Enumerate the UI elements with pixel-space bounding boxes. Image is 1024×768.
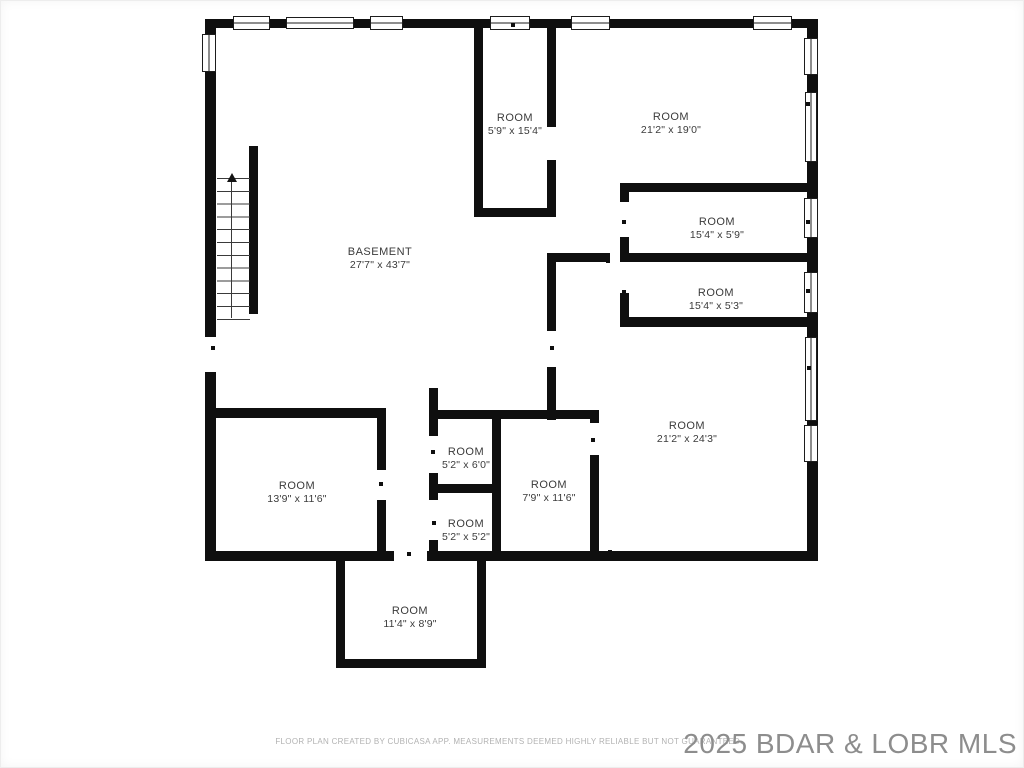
- wall-marker: [622, 290, 626, 294]
- window: [202, 34, 216, 72]
- wall-marker: [806, 289, 810, 293]
- window: [233, 16, 270, 30]
- wall-marker: [622, 185, 626, 189]
- wall-marker: [591, 438, 595, 442]
- wall-marker: [379, 482, 383, 486]
- door-opening: [546, 127, 557, 160]
- wall-marker: [550, 346, 554, 350]
- room-name: ROOM: [442, 446, 490, 459]
- room-label-center-small-lower: ROOM 5'2" x 5'2": [442, 518, 490, 544]
- room-label-bottom-right: ROOM 21'2" x 24'3": [657, 420, 717, 446]
- room-name: ROOM: [522, 479, 575, 492]
- room-label-basement: BASEMENT 27'7" x 43'7": [348, 246, 413, 272]
- room-label-bottom: ROOM 11'4" x 8'9": [383, 605, 436, 631]
- wall-marker: [715, 319, 719, 323]
- wall-marker: [477, 610, 481, 614]
- wall-marker: [593, 481, 597, 485]
- wall-marker: [584, 253, 588, 257]
- window: [753, 16, 792, 30]
- door-opening: [619, 262, 630, 293]
- wall-marker: [551, 103, 555, 107]
- disclaimer-text: FLOOR PLAN CREATED BY CUBICASA APP. MEAS…: [275, 737, 742, 746]
- room-dimensions: 21'2" x 19'0": [641, 124, 701, 137]
- window: [286, 17, 354, 29]
- room-dimensions: 5'2" x 5'2": [442, 531, 490, 544]
- floor-plan-image: BASEMENT 27'7" x 43'7" ROOM 5'9" x 15'4"…: [0, 0, 1024, 768]
- wall-marker: [211, 346, 215, 350]
- room-label-right-upper: ROOM 15'4" x 5'9": [690, 216, 744, 242]
- room-name: BASEMENT: [348, 246, 413, 259]
- door-opening: [428, 500, 439, 540]
- wall-marker: [606, 259, 610, 263]
- room-dimensions: 15'4" x 5'3": [689, 300, 743, 313]
- wall: [474, 208, 556, 217]
- wall-marker: [685, 184, 689, 188]
- room-label-center-small-upper: ROOM 5'2" x 6'0": [442, 446, 490, 472]
- door-opening: [204, 337, 217, 372]
- wall-marker: [341, 609, 345, 613]
- room-label-bottom-left: ROOM 13'9" x 11'6": [267, 480, 326, 506]
- room-dimensions: 5'9" x 15'4": [488, 125, 542, 138]
- room-name: ROOM: [383, 605, 436, 618]
- staircase-walkline: [231, 180, 232, 318]
- wall-marker: [685, 318, 689, 322]
- wall-marker: [622, 220, 626, 224]
- room-label-right-lower: ROOM 15'4" x 5'3": [689, 287, 743, 313]
- wall-marker: [295, 551, 299, 555]
- wall-marker: [431, 450, 435, 454]
- wall-marker: [715, 184, 719, 188]
- room-name: ROOM: [689, 287, 743, 300]
- wall: [429, 410, 598, 419]
- window: [804, 198, 818, 238]
- wall-marker: [511, 209, 515, 213]
- room-name: ROOM: [267, 480, 326, 493]
- wall-marker: [807, 366, 811, 370]
- wall: [474, 23, 483, 217]
- room-label-center: ROOM 7'9" x 11'6": [522, 479, 575, 505]
- room-dimensions: 5'2" x 6'0": [442, 459, 490, 472]
- wall-marker: [715, 254, 719, 258]
- wall-marker: [465, 411, 469, 415]
- wall-marker: [295, 410, 299, 414]
- room-name: ROOM: [690, 216, 744, 229]
- wall-marker: [407, 659, 411, 663]
- wall: [547, 23, 556, 217]
- wall: [429, 484, 500, 493]
- wall: [492, 410, 501, 561]
- wall: [205, 19, 216, 561]
- mls-watermark: 2025 BDAR & LOBR MLS: [683, 728, 1017, 760]
- room-dimensions: 7'9" x 11'6": [522, 492, 575, 505]
- window: [571, 16, 610, 30]
- room-dimensions: 11'4" x 8'9": [383, 618, 436, 631]
- room-name: ROOM: [641, 111, 701, 124]
- room-dimensions: 15'4" x 5'9": [690, 229, 744, 242]
- wall-marker: [432, 521, 436, 525]
- room-label-top-right: ROOM 21'2" x 19'0": [641, 111, 701, 137]
- staircase-up-arrow-icon: [227, 173, 237, 182]
- room-name: ROOM: [657, 420, 717, 433]
- wall: [249, 146, 258, 314]
- window: [805, 337, 817, 421]
- wall-marker: [806, 102, 810, 106]
- room-name: ROOM: [442, 518, 490, 531]
- window: [804, 425, 818, 462]
- door-opening: [428, 436, 439, 473]
- floor-plan: BASEMENT 27'7" x 43'7" ROOM 5'9" x 15'4"…: [0, 0, 1024, 768]
- wall-marker: [806, 220, 810, 224]
- room-dimensions: 13'9" x 11'6": [267, 493, 326, 506]
- wall-marker: [608, 550, 612, 554]
- window: [370, 16, 403, 30]
- wall: [547, 253, 610, 262]
- room-label-top-middle: ROOM 5'9" x 15'4": [488, 112, 542, 138]
- room-dimensions: 27'7" x 43'7": [348, 259, 413, 272]
- window: [490, 16, 530, 30]
- wall-marker: [464, 552, 468, 556]
- room-dimensions: 21'2" x 24'3": [657, 433, 717, 446]
- window: [804, 38, 818, 75]
- wall-marker: [476, 102, 480, 106]
- wall-marker: [511, 23, 515, 27]
- staircase-treads: [217, 178, 250, 320]
- wall-marker: [407, 552, 411, 556]
- room-name: ROOM: [488, 112, 542, 125]
- wall: [336, 659, 486, 668]
